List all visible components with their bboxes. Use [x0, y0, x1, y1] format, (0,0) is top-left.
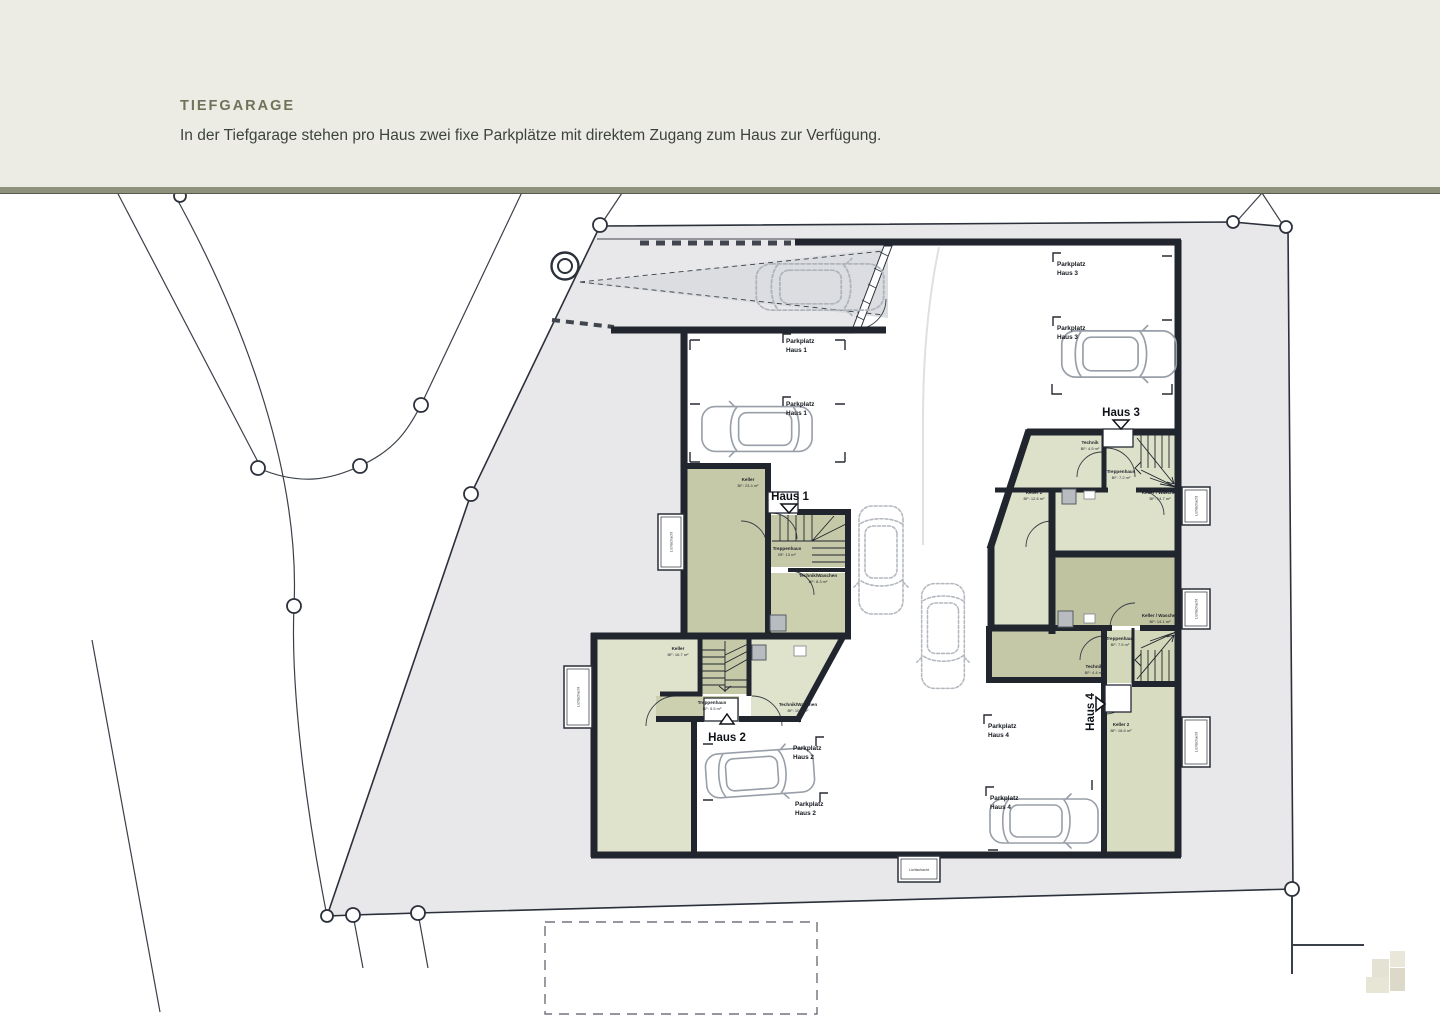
- tiefgarage-page: TIEFGARAGE In der Tiefgarage stehen pro …: [0, 0, 1440, 1018]
- lichtschacht-box: Lichtschacht: [898, 856, 940, 882]
- room-area: BF: 10.3 m²: [788, 708, 810, 713]
- svg-text:Haus 4: Haus 4: [990, 804, 1011, 811]
- lichtschacht-box: Lichtschacht: [1182, 589, 1210, 629]
- svg-text:Parkplatz: Parkplatz: [786, 338, 814, 345]
- lichtschacht-box: Lichtschacht: [564, 666, 592, 728]
- svg-text:Haus 2: Haus 2: [795, 810, 816, 817]
- lichtschacht-label: Lichtschacht: [1195, 732, 1199, 752]
- lichtschacht-label: Lichtschacht: [670, 532, 674, 552]
- road-edge: [92, 640, 160, 1012]
- boundary-point: [593, 218, 607, 232]
- lichtschacht-label: Lichtschacht: [1195, 496, 1199, 516]
- svg-text:Parkplatz: Parkplatz: [786, 401, 814, 408]
- room-area: BF: 4.5 m²: [1081, 446, 1100, 451]
- room-name: Keller: [742, 477, 755, 482]
- svg-text:Haus 3: Haus 3: [1057, 270, 1078, 277]
- room-area: BF: 18.6 m²: [1111, 728, 1133, 733]
- svg-text:Parkplatz: Parkplatz: [1057, 261, 1085, 268]
- boundary-point: [321, 910, 333, 922]
- room-name: Technik: [1081, 440, 1098, 445]
- boundary-stub: [600, 193, 1283, 226]
- boundary-point: [1280, 221, 1292, 233]
- room-name: Treppenhaus: [1106, 636, 1135, 641]
- room-name: Keller: [672, 646, 685, 651]
- room-name: Technik/Waschen: [779, 702, 817, 707]
- lichtschacht-box: Lichtschacht: [658, 514, 684, 570]
- room-area: BF: 14.1 m²: [1150, 619, 1172, 624]
- room-name: Keller / Waschen: [1142, 490, 1179, 495]
- room-area: BF: 8.3 m²: [809, 579, 828, 584]
- boundary-point: [414, 398, 428, 412]
- boundary-stub: [1292, 896, 1364, 974]
- boundary-point: [464, 487, 478, 501]
- svg-text:Parkplatz: Parkplatz: [988, 723, 1016, 730]
- future-building-dashed: [545, 922, 817, 1014]
- room-name: Treppenhaus: [773, 546, 802, 551]
- manhole-icon: [552, 253, 579, 280]
- lichtschacht-label: Lichtschacht: [909, 868, 929, 872]
- boundary-point: [1227, 216, 1239, 228]
- lichtschacht-box: Lichtschacht: [1182, 717, 1210, 767]
- boundary-point: [1285, 882, 1299, 896]
- lichtschacht-label: Lichtschacht: [1195, 599, 1199, 619]
- boundary-point: [251, 461, 265, 475]
- svg-text:Haus 1: Haus 1: [786, 347, 807, 354]
- room-area: BF: 4.4 m²: [1085, 670, 1104, 675]
- road-edge: [172, 190, 327, 916]
- svg-text:Parkplatz: Parkplatz: [1057, 325, 1085, 332]
- room-name: Technik: [1085, 664, 1102, 669]
- room-name: Keller / Waschen: [1142, 613, 1179, 618]
- room-area: BF: 7.2 m²: [1112, 475, 1131, 480]
- road-curve: [258, 190, 523, 479]
- room-area: BF: 16.7 m²: [668, 652, 690, 657]
- room-area: BF: 14.7 m²: [1150, 496, 1172, 501]
- svg-text:Parkplatz: Parkplatz: [795, 801, 823, 808]
- svg-text:Haus 4: Haus 4: [988, 732, 1009, 739]
- lichtschacht-label: Lichtschacht: [577, 687, 581, 707]
- room-name: Treppenhaus: [1107, 469, 1136, 474]
- haus-3-label: Haus 3: [1102, 407, 1140, 419]
- room-name: Keller 2: [1113, 722, 1130, 727]
- boundary-point: [411, 906, 425, 920]
- page-header: TIEFGARAGE In der Tiefgarage stehen pro …: [0, 0, 1440, 187]
- room-name: Keller 2: [1026, 490, 1043, 495]
- room-area: BF: 5.5 m²: [703, 706, 722, 711]
- logo-mark: [1366, 951, 1405, 993]
- room-area: BF: 12.6 m²: [1024, 496, 1046, 501]
- svg-text:Haus 3: Haus 3: [1057, 334, 1078, 341]
- room-name: Treppenhaus: [698, 700, 727, 705]
- svg-text:Parkplatz: Parkplatz: [990, 795, 1018, 802]
- lichtschacht-box: Lichtschacht: [1182, 487, 1210, 525]
- header-divider: [0, 187, 1440, 194]
- svg-text:Parkplatz: Parkplatz: [793, 745, 821, 752]
- haus-2-label: Haus 2: [708, 732, 746, 744]
- room-name: Technik/Waschen: [799, 573, 837, 578]
- svg-text:Haus 2: Haus 2: [793, 754, 814, 761]
- haus-4-label: Haus 4: [1085, 693, 1097, 731]
- boundary-point: [287, 599, 301, 613]
- boundary-point: [353, 459, 367, 473]
- boundary-stub: [353, 913, 428, 968]
- page-subtitle: In der Tiefgarage stehen pro Haus zwei f…: [180, 127, 881, 145]
- room-area: BF: 7.5 m²: [1111, 642, 1130, 647]
- haus-1-label: Haus 1: [771, 491, 809, 503]
- room-area: BF: 13 m²: [778, 552, 796, 557]
- page-title: TIEFGARAGE: [180, 98, 295, 114]
- boundary-point: [346, 908, 360, 922]
- svg-text:Haus 1: Haus 1: [786, 410, 807, 417]
- room-area: BF: 23.4 m²: [738, 483, 760, 488]
